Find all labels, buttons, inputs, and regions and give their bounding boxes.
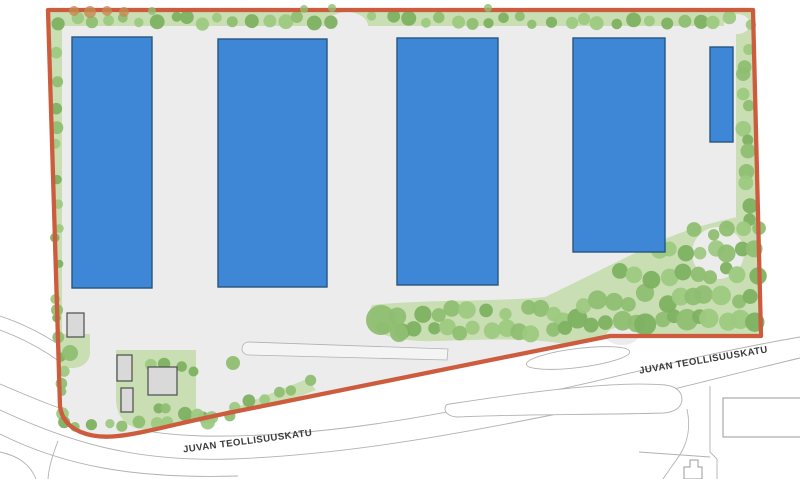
tree-icon [69, 6, 79, 16]
tree-icon [644, 16, 655, 27]
site-plan-map: JUVAN TEOLLISUUSKATU JUVAN TEOLLISUUSKAT… [0, 0, 800, 479]
tree-icon [694, 247, 707, 260]
tree-icon [178, 407, 192, 421]
tree-icon [590, 16, 604, 30]
tree-icon [743, 198, 758, 213]
tree-icon [527, 20, 536, 29]
tree-icon [421, 18, 431, 28]
tree-icon [52, 76, 63, 87]
tree-icon [598, 315, 613, 330]
tree-icon [245, 14, 259, 28]
outbuilding-2 [117, 355, 132, 381]
tree-icon [86, 419, 97, 430]
tree-icon [499, 308, 511, 320]
tree-icon [324, 16, 337, 29]
tree-icon [467, 18, 479, 30]
tree-icon [699, 309, 718, 328]
tree-icon [634, 313, 656, 335]
tree-icon [148, 7, 156, 15]
tree-icon [227, 16, 238, 27]
tree-icon [51, 47, 63, 59]
tree-icon [180, 10, 194, 24]
tree-icon [484, 4, 492, 12]
tree-icon [134, 18, 143, 27]
tree-icon [711, 286, 731, 306]
tree-icon [694, 15, 708, 29]
outbuilding-4 [121, 388, 133, 412]
tree-icon [723, 11, 736, 24]
tree-icon [547, 307, 562, 322]
tree-icon [62, 345, 78, 361]
tree-icon [584, 318, 599, 333]
tree-icon [189, 367, 199, 377]
tree-icon [626, 13, 641, 28]
tree-icon [52, 17, 65, 30]
tree-icon [558, 321, 572, 335]
tree-icon [483, 18, 493, 28]
planned-building-4 [573, 38, 665, 252]
tree-icon [694, 285, 713, 304]
tree-icon [578, 13, 590, 25]
tree-icon [264, 15, 277, 28]
tree-icon [465, 321, 479, 335]
tree-icon [484, 322, 501, 339]
tree-icon [737, 88, 750, 101]
tree-icon [678, 245, 694, 261]
tree-icon [328, 4, 336, 12]
planned-building-3 [397, 38, 498, 285]
tree-icon [367, 12, 376, 21]
tree-icon [406, 321, 421, 336]
tree-icon [196, 18, 209, 31]
tree-icon [390, 324, 408, 342]
tree-icon [479, 304, 493, 318]
tree-icon [133, 416, 146, 429]
tree-icon [515, 11, 525, 21]
tree-icon [687, 222, 702, 237]
outbuilding-1 [67, 313, 84, 337]
tree-icon [443, 300, 460, 317]
tree-icon [621, 297, 636, 312]
tree-icon [546, 17, 557, 28]
tree-icon [243, 394, 256, 407]
tree-icon [612, 19, 623, 30]
tree-icon [433, 12, 444, 23]
tree-icon [428, 322, 440, 334]
tree-icon [643, 271, 661, 289]
tree-icon [736, 121, 752, 137]
tree-icon [588, 290, 607, 309]
tree-icon [458, 301, 476, 319]
tree-icon [286, 385, 296, 395]
tree-icon [102, 6, 112, 16]
tree-icon [678, 15, 691, 28]
tree-icon [86, 16, 98, 28]
tree-icon [176, 361, 187, 372]
tree-icon [703, 270, 717, 284]
site-plan-canvas: JUVAN TEOLLISUUSKATU JUVAN TEOLLISUUSKAT… [0, 0, 800, 479]
outbuilding-3 [148, 367, 177, 395]
tree-icon [300, 5, 308, 13]
tree-icon [226, 356, 240, 370]
tree-icon [105, 419, 114, 428]
tree-icon [706, 16, 719, 29]
tree-icon [708, 229, 719, 240]
planned-building-1 [72, 37, 152, 288]
tree-icon [161, 403, 171, 413]
tree-icon [212, 13, 222, 23]
tree-icon [743, 289, 758, 304]
tree-icon [729, 266, 746, 283]
planned-building-2 [218, 39, 327, 287]
tree-icon [741, 144, 756, 159]
tree-icon [401, 11, 416, 26]
tree-icon [743, 100, 754, 111]
neighbor-building-1 [723, 398, 800, 437]
tree-icon [605, 293, 623, 311]
tree-icon [150, 14, 165, 29]
tree-icon [736, 67, 750, 81]
tree-icon [566, 17, 578, 29]
tree-icon [522, 325, 539, 342]
tree-icon [305, 375, 316, 386]
tree-icon [84, 6, 96, 18]
tree-icon [291, 11, 303, 23]
tree-icon [452, 326, 467, 341]
tree-icon [739, 175, 754, 190]
tree-icon [719, 221, 735, 237]
tree-icon [498, 12, 509, 23]
tree-icon [307, 16, 322, 31]
tree-icon [612, 263, 628, 279]
tree-icon [718, 244, 736, 262]
tree-icon [119, 7, 129, 17]
tree-icon [736, 221, 751, 236]
tree-icon [452, 16, 465, 29]
tree-icon [274, 387, 285, 398]
planned-building-5 [710, 47, 733, 142]
tree-icon [103, 15, 114, 26]
tree-icon [414, 306, 431, 323]
tree-icon [626, 267, 643, 284]
tree-icon [661, 18, 673, 30]
tree-icon [675, 264, 692, 281]
tree-icon [116, 421, 127, 432]
